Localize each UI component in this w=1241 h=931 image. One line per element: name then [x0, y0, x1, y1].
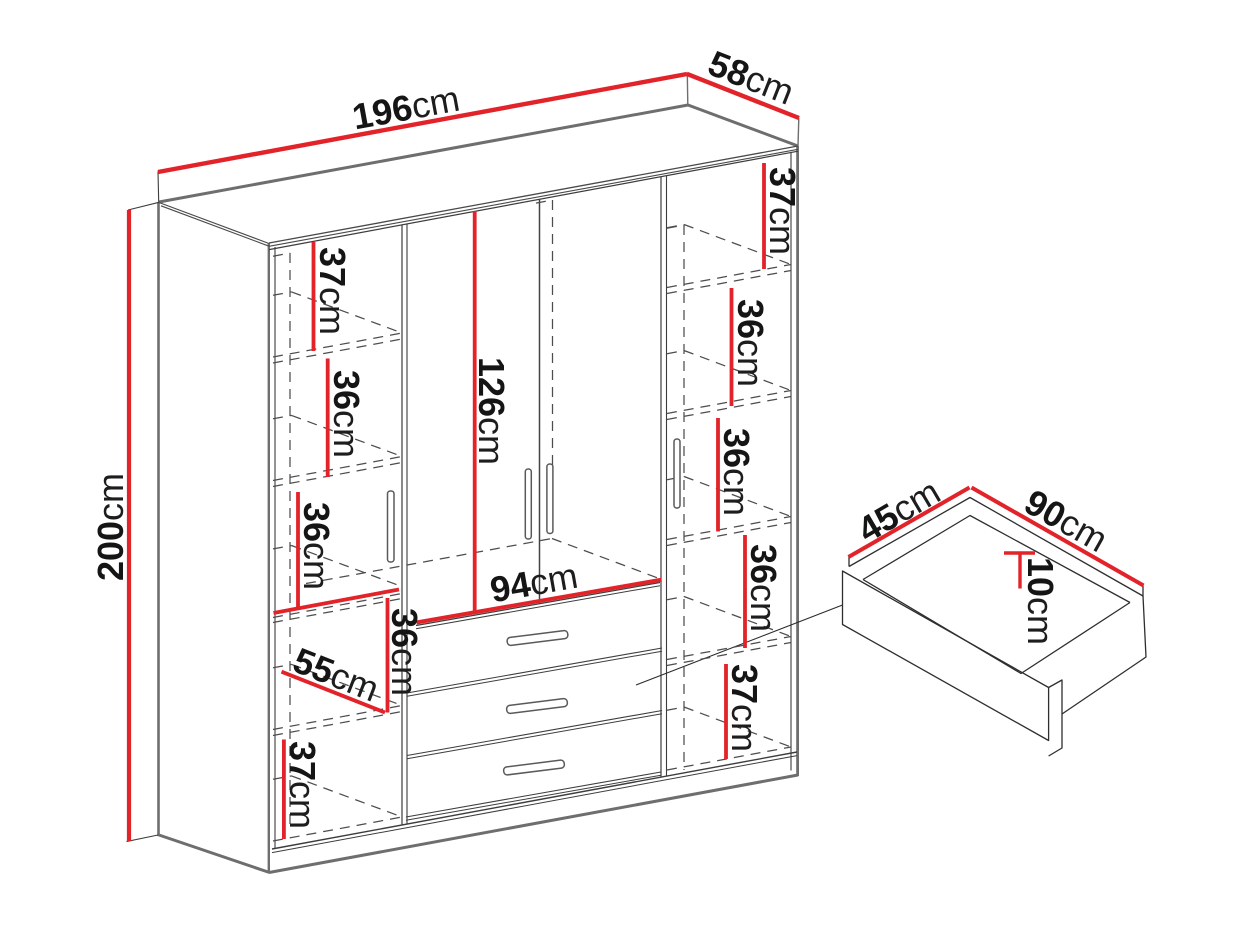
svg-text:37cm: 37cm — [312, 247, 353, 335]
svg-text:36cm: 36cm — [384, 608, 425, 696]
svg-text:10cm: 10cm — [1020, 557, 1061, 645]
svg-text:37cm: 37cm — [724, 664, 765, 752]
svg-text:36cm: 36cm — [296, 502, 337, 590]
svg-text:55cm: 55cm — [288, 639, 385, 709]
svg-text:36cm: 36cm — [730, 299, 771, 387]
svg-text:37cm: 37cm — [762, 167, 803, 255]
svg-text:90cm: 90cm — [1018, 481, 1115, 560]
svg-text:36cm: 36cm — [716, 428, 757, 516]
svg-text:36cm: 36cm — [743, 544, 784, 632]
svg-text:36cm: 36cm — [326, 370, 367, 458]
svg-text:58cm: 58cm — [703, 42, 800, 112]
svg-text:200cm: 200cm — [90, 473, 131, 581]
svg-text:196cm: 196cm — [349, 78, 463, 138]
svg-text:126cm: 126cm — [471, 357, 512, 465]
svg-text:37cm: 37cm — [282, 741, 323, 829]
